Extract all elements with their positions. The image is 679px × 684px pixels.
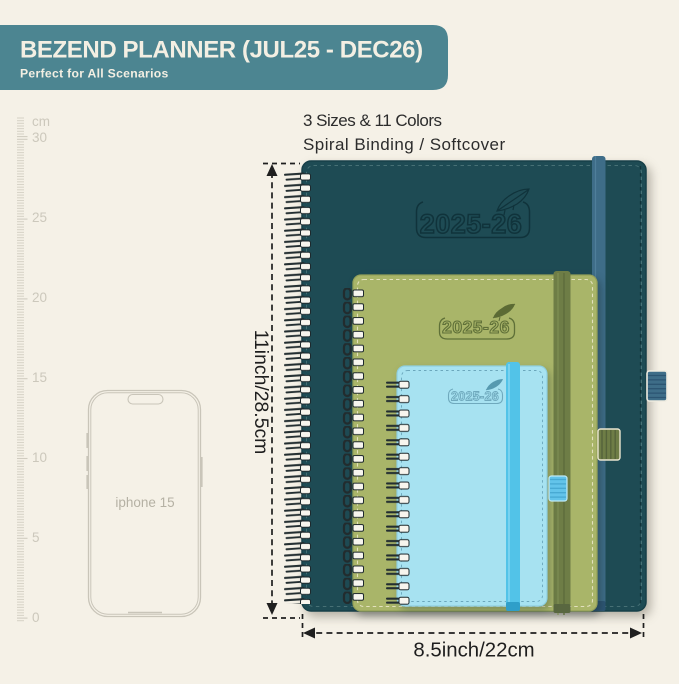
svg-text:5: 5 xyxy=(32,530,40,545)
svg-text:Perfect for All Scenarios: Perfect for All Scenarios xyxy=(20,67,169,81)
svg-text:10: 10 xyxy=(32,450,47,465)
svg-text:2025-26: 2025-26 xyxy=(420,209,523,239)
svg-text:cm: cm xyxy=(32,114,50,129)
svg-text:3 Sizes & 11 Colors: 3 Sizes & 11 Colors xyxy=(303,111,442,130)
svg-text:iphone 15: iphone 15 xyxy=(115,495,174,510)
svg-text:25: 25 xyxy=(32,210,47,225)
svg-text:15: 15 xyxy=(32,370,47,385)
svg-text:Spiral Binding / Softcover: Spiral Binding / Softcover xyxy=(303,135,506,154)
svg-text:2025-26: 2025-26 xyxy=(451,390,499,404)
svg-text:30: 30 xyxy=(32,130,47,145)
svg-text:BEZEND PLANNER (JUL25 - DEC26): BEZEND PLANNER (JUL25 - DEC26) xyxy=(20,37,423,64)
svg-text:8.5inch/22cm: 8.5inch/22cm xyxy=(413,640,534,662)
svg-text:11inch/28.5cm: 11inch/28.5cm xyxy=(250,330,272,455)
svg-text:0: 0 xyxy=(32,610,40,625)
svg-text:20: 20 xyxy=(32,290,47,305)
